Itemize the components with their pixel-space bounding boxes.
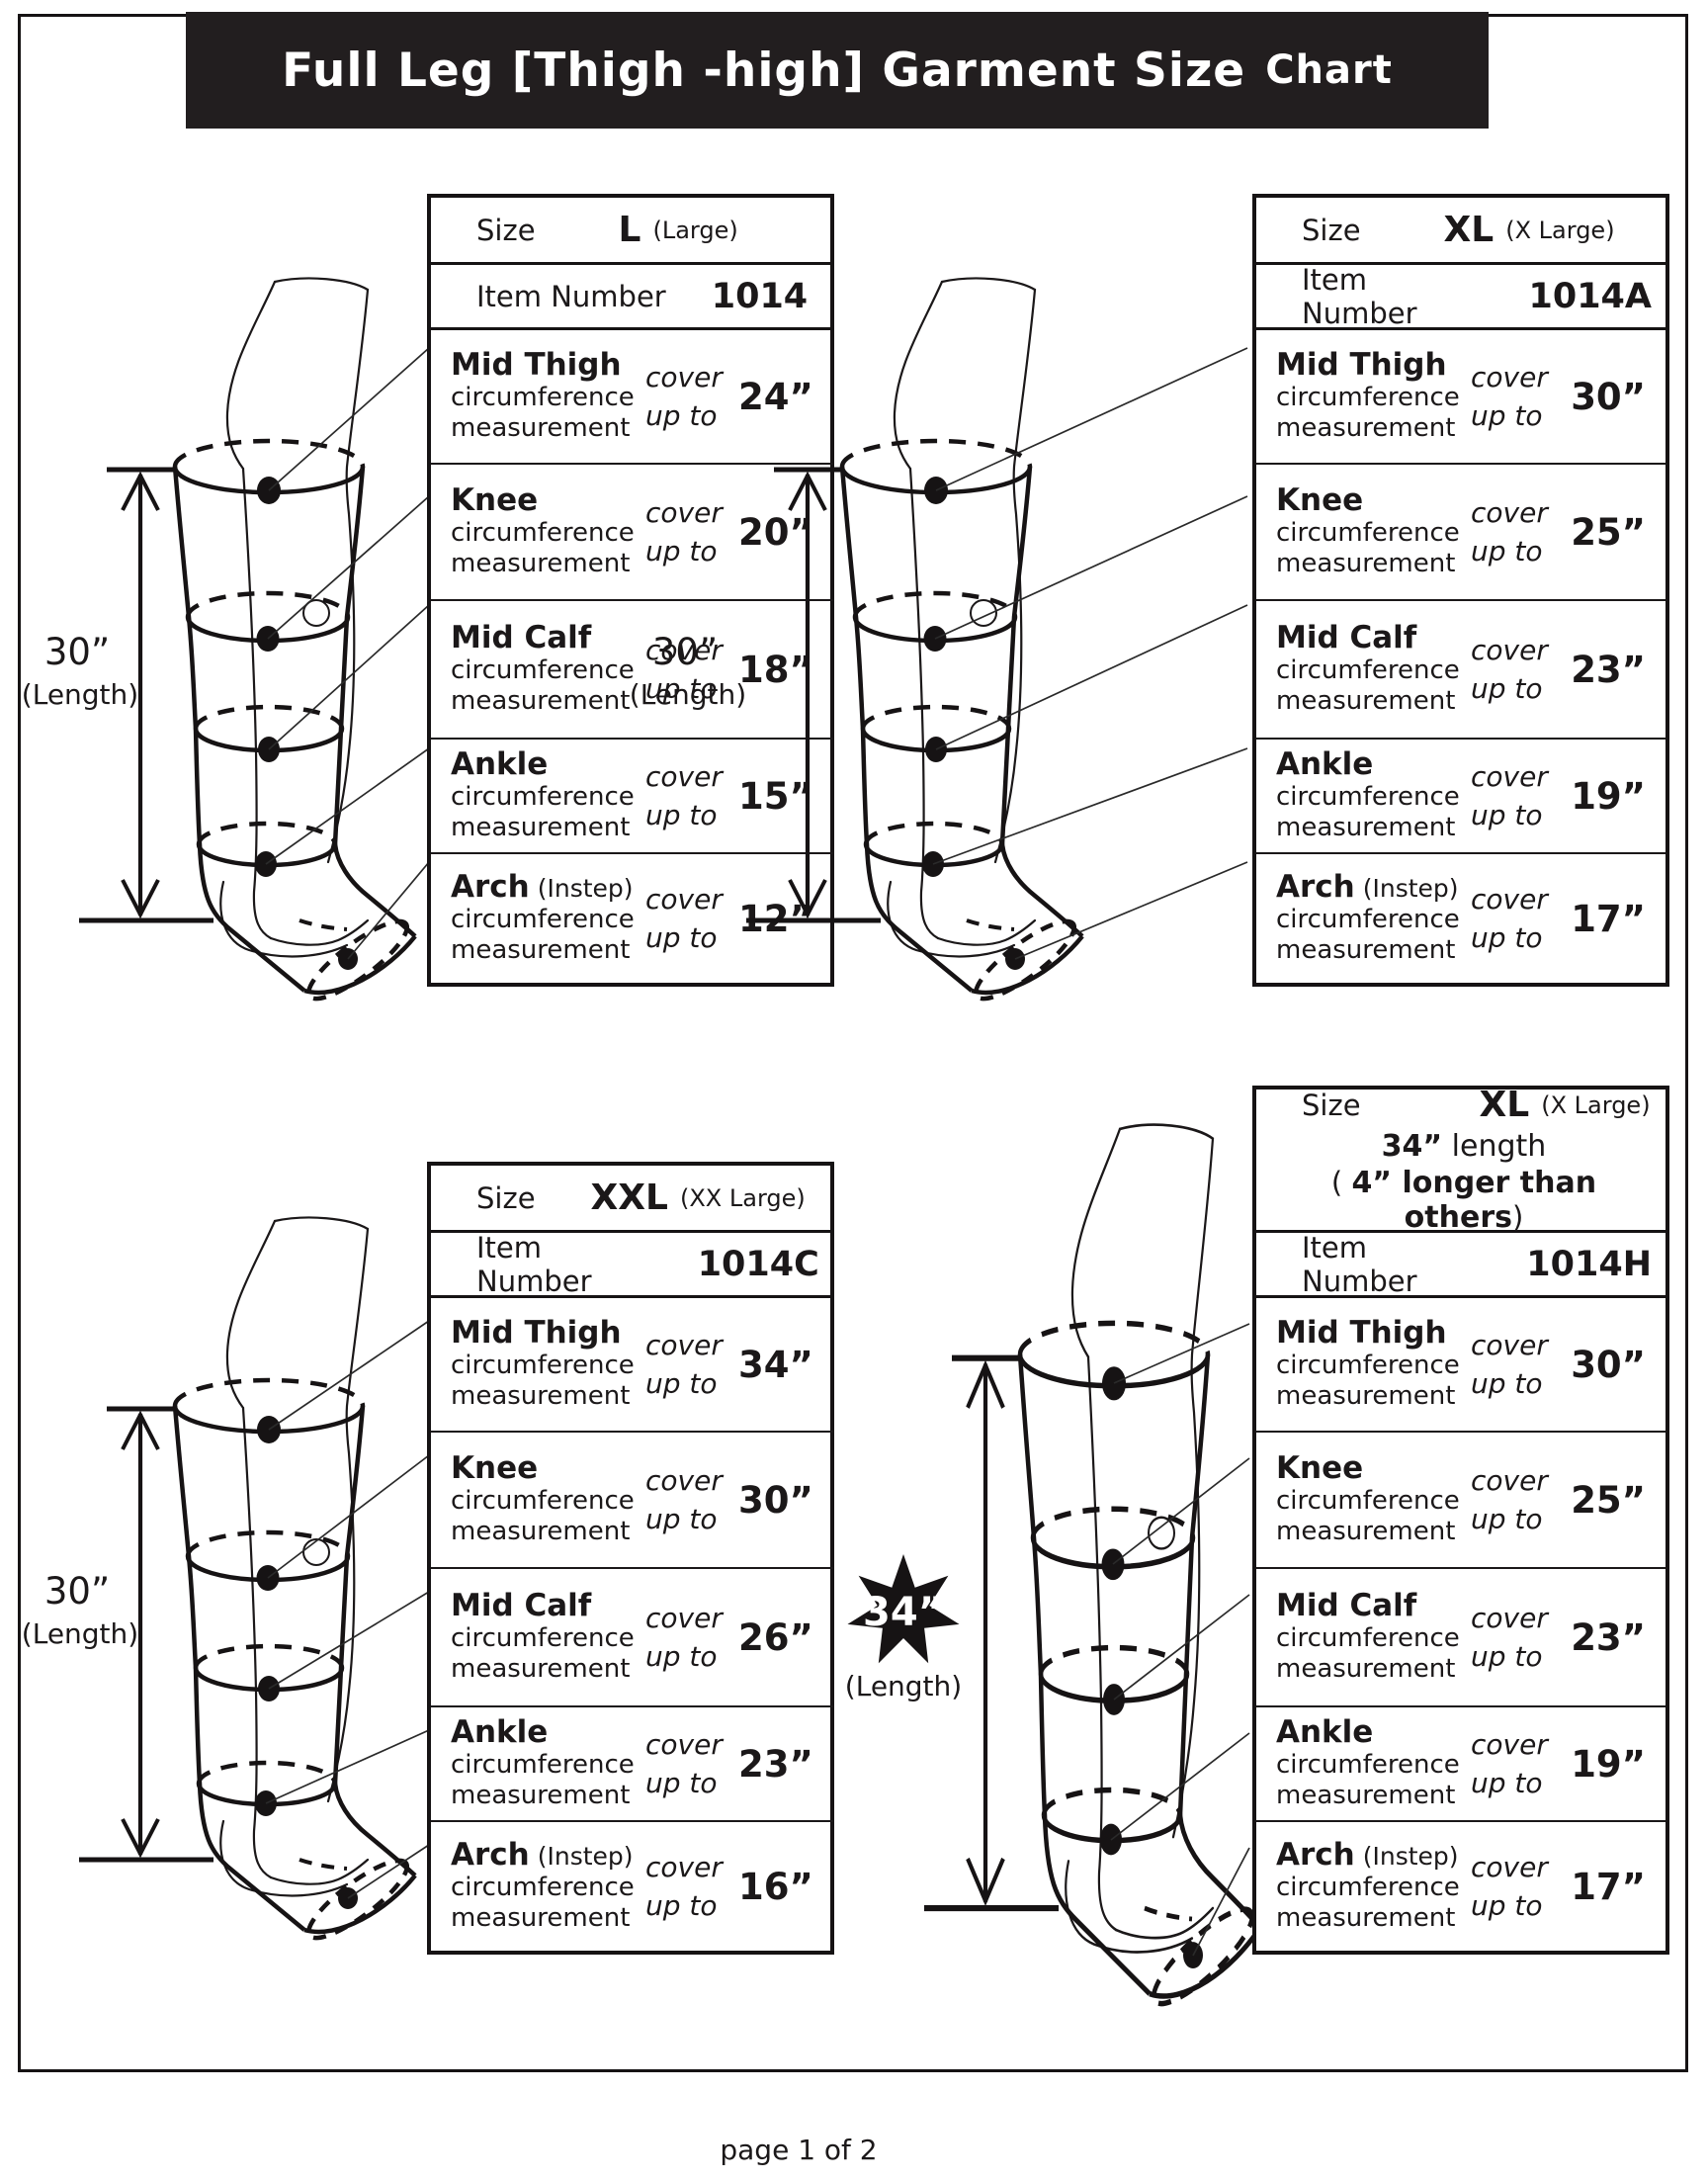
star-length-value: 34”: [863, 1590, 944, 1635]
size-name: (X Large): [1541, 1091, 1650, 1119]
measurement-value: 30”: [1564, 376, 1652, 418]
page-title-chart: Chart: [1265, 47, 1393, 93]
callout-lines: [933, 348, 1247, 959]
cover-up-to-label: cover up to: [643, 1461, 738, 1538]
size-name: (X Large): [1505, 217, 1614, 244]
row-labels: Mid Thigh circumference measurement: [451, 1316, 643, 1412]
leg-diagram-size-xl: 30” (Length): [628, 237, 1253, 1003]
size-label: Size: [476, 214, 536, 247]
longer-note: ( 4” longer than others): [1276, 1166, 1652, 1235]
cover-up-to-label: cover up to: [1469, 1725, 1564, 1802]
cover-up-to-label: cover up to: [1469, 1599, 1564, 1676]
measurement-value: 26”: [738, 1616, 819, 1659]
site-name: Mid Calf: [1276, 1588, 1416, 1623]
cover-up-to-label: cover up to: [643, 1725, 738, 1802]
size-line: Size XL (X Large): [1276, 1085, 1652, 1125]
table-row-mid-calf: Mid Calf circumference measurement cover…: [1256, 1569, 1665, 1707]
item-number-row: Item Number 1014H: [1256, 1233, 1665, 1298]
table-row-mid-thigh: Mid Thigh circumference measurement cove…: [1256, 1298, 1665, 1433]
site-name: Knee: [451, 482, 538, 518]
item-number-value: 1014H: [1526, 1245, 1652, 1284]
table-row-mid-calf: Mid Calf circumference measurement cover…: [1256, 601, 1665, 740]
size-code: XL: [1480, 1085, 1530, 1125]
row-labels: Ankle circumference measurement: [451, 1715, 643, 1811]
row-labels: Mid Thigh circumference measurement: [1276, 1316, 1469, 1412]
measurement-value: 34”: [738, 1344, 819, 1386]
item-number-value: 1014C: [698, 1245, 819, 1284]
size-table-xxl: Size XXL (XX Large) Item Number 1014C Mi…: [427, 1162, 834, 1955]
item-number-row: Item Number 1014C: [431, 1233, 833, 1298]
table-row-mid-thigh: Mid Thigh circumference measurement cove…: [431, 1298, 833, 1433]
site-name: Ankle: [451, 746, 548, 782]
measurement-value: 23”: [1564, 649, 1652, 691]
row-labels: Knee circumference measurement: [451, 483, 643, 579]
site-name: Arch: [451, 1837, 530, 1873]
cover-up-to-label: cover up to: [1469, 757, 1564, 834]
cover-up-to-label: cover up to: [1469, 880, 1564, 957]
site-suffix: (Instep): [538, 874, 634, 903]
measurement-value: 23”: [738, 1743, 819, 1786]
measurement-value: 30”: [1564, 1344, 1652, 1386]
length-note: 34” length: [1276, 1129, 1652, 1164]
site-name: Mid Calf: [451, 620, 591, 655]
leg-diagram-size-xl-34: 34” (Length): [840, 1075, 1253, 2009]
measurement-label: measurement: [451, 413, 643, 444]
measurement-value: 25”: [1564, 511, 1652, 554]
site-name: Ankle: [451, 1714, 548, 1750]
table-row-ankle: Ankle circumference measurement cover up…: [1256, 740, 1665, 854]
row-labels: Mid Calf circumference measurement: [451, 1589, 643, 1685]
length-star: 34”: [848, 1554, 960, 1663]
page-footer: page 1 of 2: [0, 2134, 1653, 2166]
measurement-value: 19”: [1564, 1743, 1652, 1786]
cover-up-to-label: cover up to: [1469, 1326, 1564, 1403]
row-labels: Mid Calf circumference measurement: [1276, 1589, 1469, 1685]
table-row-knee: Knee circumference measurement cover up …: [431, 1433, 833, 1569]
table-row-mid-thigh: Mid Thigh circumference measurement cove…: [1256, 330, 1665, 465]
measurement-value: 17”: [1564, 898, 1652, 940]
row-labels: Arch(Instep) circumference measurement: [1276, 1838, 1469, 1934]
measurement-value: 17”: [1564, 1866, 1652, 1908]
site-name: Knee: [1276, 1450, 1363, 1486]
cover-up-to-label: cover up to: [1469, 1848, 1564, 1925]
site-suffix: (Instep): [538, 1842, 634, 1871]
row-labels: Mid Thigh circumference measurement: [451, 348, 643, 444]
length-value: 30”: [44, 1570, 110, 1613]
measurement-value: 23”: [1564, 1616, 1652, 1659]
site-suffix: (Instep): [1363, 1842, 1459, 1871]
site-name: Arch: [451, 869, 530, 905]
row-labels: Knee circumference measurement: [1276, 483, 1469, 579]
size-header-row: Size XL (X Large): [1256, 198, 1665, 265]
site-name: Mid Thigh: [451, 1315, 622, 1351]
row-labels: Arch(Instep) circumference measurement: [1276, 870, 1469, 966]
cover-up-to-label: cover up to: [643, 1599, 738, 1676]
table-row-knee: Knee circumference measurement cover up …: [1256, 465, 1665, 601]
title-bar: Full Leg [Thigh -high] Garment Size Char…: [186, 12, 1489, 129]
site-name: Mid Calf: [1276, 620, 1416, 655]
size-header-row: Size XXL (XX Large): [431, 1166, 833, 1233]
length-label: (Length): [22, 678, 138, 711]
row-labels: Mid Calf circumference measurement: [451, 621, 643, 717]
site-name: Mid Thigh: [1276, 347, 1447, 383]
site-name: Mid Thigh: [451, 347, 622, 383]
measurement-value: 19”: [1564, 775, 1652, 818]
cover-up-to-label: cover up to: [643, 1848, 738, 1925]
size-table-xl: Size XL (X Large) Item Number 1014A Mid …: [1252, 194, 1669, 987]
table-row-ankle: Ankle circumference measurement cover up…: [431, 1707, 833, 1822]
table-row-mid-calf: Mid Calf circumference measurement cover…: [431, 1569, 833, 1707]
measurement-value: 16”: [738, 1866, 819, 1908]
length-label: (Length): [845, 1670, 962, 1702]
page: Full Leg [Thigh -high] Garment Size Char…: [0, 0, 1708, 2181]
row-labels: Mid Calf circumference measurement: [1276, 621, 1469, 717]
size-header-row: Size XL (X Large) 34” length ( 4” longer…: [1256, 1090, 1665, 1233]
size-code: XXL: [591, 1178, 668, 1218]
row-labels: Ankle circumference measurement: [451, 747, 643, 843]
item-number-value: 1014A: [1529, 277, 1653, 316]
length-label: (Length): [630, 678, 746, 711]
size-name: (XX Large): [680, 1184, 806, 1212]
leg-diagram-size-xxl: 30” (Length): [20, 1177, 435, 1943]
site-name: Knee: [451, 1450, 538, 1486]
size-code: XL: [1444, 210, 1494, 250]
length-value: 30”: [44, 631, 110, 673]
cover-up-to-label: cover up to: [643, 1326, 738, 1403]
site-name: Arch: [1276, 1837, 1355, 1873]
size-table-xl-34: Size XL (X Large) 34” length ( 4” longer…: [1252, 1086, 1669, 1955]
circumference-label: circumference: [451, 383, 643, 413]
row-labels: Ankle circumference measurement: [1276, 1715, 1469, 1811]
item-number-row: Item Number 1014A: [1256, 265, 1665, 330]
table-row-arch: Arch(Instep) circumference measurement c…: [1256, 854, 1665, 983]
row-labels: Ankle circumference measurement: [1276, 747, 1469, 843]
table-row-arch: Arch(Instep) circumference measurement c…: [431, 1822, 833, 1951]
table-row-arch: Arch(Instep) circumference measurement c…: [1256, 1822, 1665, 1951]
row-labels: Knee circumference measurement: [1276, 1451, 1469, 1547]
site-name: Mid Thigh: [1276, 1315, 1447, 1351]
leg-diagram-size-l: 30” (Length): [20, 237, 435, 1003]
site-name: Knee: [1276, 482, 1363, 518]
site-name: Ankle: [1276, 746, 1373, 782]
cover-up-to-label: cover up to: [1469, 1461, 1564, 1538]
site-name: Mid Calf: [451, 1588, 591, 1623]
cover-up-to-label: cover up to: [1469, 631, 1564, 708]
site-name: Ankle: [1276, 1714, 1373, 1750]
length-value: 30”: [652, 631, 718, 673]
table-row-knee: Knee circumference measurement cover up …: [1256, 1433, 1665, 1569]
measurement-value: 25”: [1564, 1479, 1652, 1522]
cover-up-to-label: cover up to: [1469, 493, 1564, 570]
row-labels: Knee circumference measurement: [451, 1451, 643, 1547]
table-row-ankle: Ankle circumference measurement cover up…: [1256, 1707, 1665, 1822]
page-title: Full Leg [Thigh -high] Garment Size: [282, 44, 1245, 98]
length-label: (Length): [22, 1617, 138, 1650]
callout-lines: [1111, 1324, 1249, 1956]
row-labels: Mid Thigh circumference measurement: [1276, 348, 1469, 444]
row-labels: Arch(Instep) circumference measurement: [451, 870, 643, 966]
row-labels: Arch(Instep) circumference measurement: [451, 1838, 643, 1934]
measurement-value: 30”: [738, 1479, 819, 1522]
site-suffix: (Instep): [1363, 874, 1459, 903]
cover-up-to-label: cover up to: [1469, 358, 1564, 435]
site-name: Arch: [1276, 869, 1355, 905]
